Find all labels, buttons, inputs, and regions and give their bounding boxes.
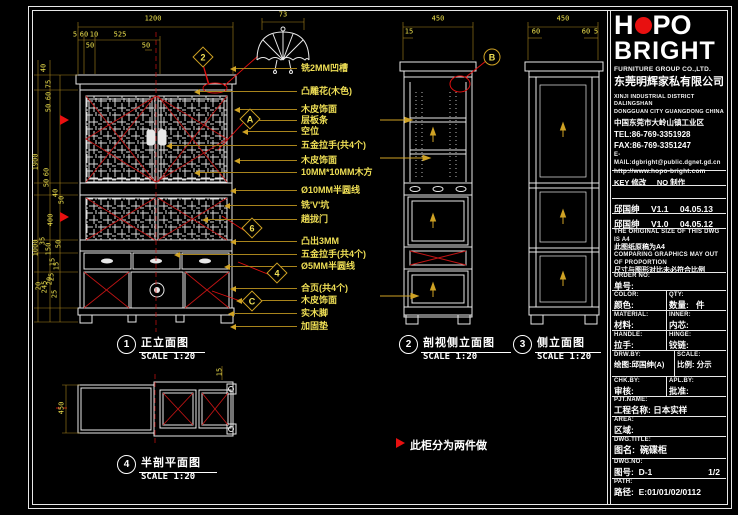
path-label-en: PATH: xyxy=(612,479,726,487)
red-marker-triangle xyxy=(60,115,74,125)
drawnby-label-cn: 绘图: xyxy=(614,360,632,369)
callout-leader-line xyxy=(236,109,297,110)
dimension-label: 60 xyxy=(44,168,51,176)
note-line-3: COMPARING GRAPHICS MAY OUT xyxy=(612,252,726,260)
rev-key-label: KEY 修改 xyxy=(612,178,646,186)
material-label-en: MATERIAL: xyxy=(614,312,668,320)
view4-title: 半剖平面图 xyxy=(139,454,217,473)
qty-unit: 件 xyxy=(696,300,705,310)
dimension-label: 20 xyxy=(47,277,54,285)
path-row: PATH: 路径: E:01/01/02/0112 xyxy=(612,479,726,499)
callout-arrow-icon xyxy=(227,188,236,194)
area-label-cn: 区域: xyxy=(612,425,726,435)
callout-label: 木皮饰面 xyxy=(301,296,337,305)
callout-leader-line xyxy=(232,288,297,289)
view4-number: 4 xyxy=(117,455,136,474)
logo-po: PO xyxy=(653,12,692,39)
view1-scale: SCALE 1:20 xyxy=(141,352,195,362)
dimension-label: 450 xyxy=(432,16,445,23)
dimension-label: 450 xyxy=(59,402,66,415)
callout-leader-line xyxy=(236,160,297,161)
color-label-en: COLOR: xyxy=(614,292,668,300)
rev-no-label: NO 制作 xyxy=(651,178,685,186)
note-arrow-icon xyxy=(396,438,410,448)
callout-leader-line xyxy=(176,254,297,255)
drawnby-label-en: DRW.BY: xyxy=(614,352,676,360)
callout-arrow-icon xyxy=(171,252,180,258)
revision-header: KEY 修改 NO 制作 DATE 日期 xyxy=(612,172,726,186)
callout-label: 层板条 xyxy=(301,116,328,125)
dimension-label: 1900 xyxy=(33,154,40,171)
inner-label-en: INNER: xyxy=(669,312,726,320)
logo-fax: FAX:86-769-3351247 xyxy=(612,140,726,151)
callout-label: 五金拉手(共4个) xyxy=(301,141,366,150)
handle-label-cn: 拉手: xyxy=(614,340,668,350)
color-label-cn: 颜色: xyxy=(614,300,668,310)
callout-arrow-icon xyxy=(227,324,236,330)
side-view-marks xyxy=(561,123,566,286)
dimension-label: 50 xyxy=(59,196,66,204)
logo-company-cn: 东莞明辉家私有限公司 xyxy=(612,74,726,91)
plan-view xyxy=(78,382,236,436)
dimension-label: 40 xyxy=(41,64,48,72)
note-text: 此柜分为两件做 xyxy=(410,437,487,453)
rev1-by: 邱国绅 xyxy=(612,204,640,214)
hinge-label-en: HINGE: xyxy=(669,332,726,340)
callout-label: 五金拉手(共4个) xyxy=(301,250,366,259)
callout-arrow-icon xyxy=(191,89,200,95)
logo-tel: TEL:86-769-3351928 xyxy=(612,127,726,140)
logo-email: E-MAIL:dgbright@public.dgnet.gd.cn xyxy=(612,150,726,167)
callout-leader-line xyxy=(226,205,297,206)
callout-label: 凸雕花(木色) xyxy=(301,87,352,96)
logo-address-cn: 中国东莞市大岭山镇工业区 xyxy=(612,116,726,127)
hinge-label-cn: 铰链: xyxy=(669,340,726,350)
dimension-label: 525 xyxy=(114,32,127,39)
view4-scale: SCALE 1:20 xyxy=(141,472,195,482)
approve-label-en: APL.BY: xyxy=(669,378,726,386)
logo-address-1: XINJI INDUSTRIAL DISTRICT DALINGSHAN xyxy=(612,91,726,108)
view2-number: 2 xyxy=(399,335,418,354)
dimension-label: 75 xyxy=(46,80,53,88)
callout-leader-line xyxy=(226,266,297,267)
callout-label: 加固垫 xyxy=(301,322,328,331)
handle-hinge-row: HANDLE: 拉手: HINGE: 铰链: xyxy=(612,331,726,351)
callout-arrow-icon xyxy=(191,170,200,176)
dimension-label: 450 xyxy=(557,16,570,23)
callout-arrow-icon xyxy=(199,217,208,223)
callout-label: Ø10MM半圆线 xyxy=(301,186,360,195)
dimension-label: 60 xyxy=(532,29,540,36)
callout-arrow-icon xyxy=(227,286,236,292)
dimension-label: 50 xyxy=(86,43,94,50)
rev2-by: 邱国绅 xyxy=(612,219,640,229)
qty-label-en: QTY: xyxy=(669,292,726,300)
order-no-label-cn: 单号: xyxy=(612,281,726,291)
revision-row-1: 邱国绅 V1.1 04.05.13 xyxy=(612,199,726,214)
logo-hopo: HPO xyxy=(612,12,726,39)
rev1-version: V1.1 xyxy=(644,204,669,214)
dimension-label: 1000 xyxy=(33,240,40,257)
dimension-label: 1200 xyxy=(145,16,162,23)
dimension-label: 5 xyxy=(594,29,598,36)
scale-value: 分示 xyxy=(697,360,712,369)
callout-label: 铣2MM凹槽 xyxy=(301,64,348,73)
drawing-title-row: DWG.TITLE: 图名: 碗碟柜 xyxy=(612,437,726,459)
callout-arrow-icon xyxy=(221,264,230,270)
color-qty-row: COLOR: 颜色: QTY: 数量: 件 xyxy=(612,291,726,311)
dimension-label: 73 xyxy=(279,12,287,19)
dwg-no-value: D-1 xyxy=(639,467,653,477)
order-no-row: ORDER NO: 单号: xyxy=(612,273,726,291)
dimension-label: 15 xyxy=(54,262,61,270)
logo-block: HPO BRIGHT FURNITURE GROUP CO.,LTD. 东莞明辉… xyxy=(612,12,726,171)
callout-leader-line xyxy=(230,313,297,314)
approve-label-cn: 批准: xyxy=(669,386,726,396)
section-side-view xyxy=(400,62,476,324)
dimension-label: 150 xyxy=(46,243,53,256)
callout-label: 合页(共4个) xyxy=(301,284,348,293)
callout-arrow-icon xyxy=(225,311,234,317)
view1-number: 1 xyxy=(117,335,136,354)
logo-subtitle: FURNITURE GROUP CO.,LTD. xyxy=(612,64,726,74)
view3-title: 侧立面图 xyxy=(535,334,601,353)
area-row: AREA: 区域: xyxy=(612,417,726,437)
callout-leader-line xyxy=(232,326,297,327)
callout-label: 木皮饰面 xyxy=(301,105,337,114)
callout-arrow-icon xyxy=(221,203,230,209)
callout-arrow-icon xyxy=(231,107,240,113)
logo-red-dot-icon xyxy=(635,17,652,34)
rev2-version: V1.0 xyxy=(644,219,669,229)
view3-number: 3 xyxy=(513,335,532,354)
inner-label-cn: 内芯: xyxy=(669,320,726,330)
dimension-label: 5 xyxy=(73,32,77,39)
revision-row-2: 邱国绅 V1.0 04.05.12 xyxy=(612,214,726,229)
dwg-title-label-cn: 图名: xyxy=(614,445,635,455)
rev1-date: 04.05.13 xyxy=(673,204,713,214)
handle-label-en: HANDLE: xyxy=(614,332,668,340)
check-label-en: CHK.BY: xyxy=(614,378,668,386)
callout-label: 实木脚 xyxy=(301,309,328,318)
dwg-title-value: 碗碟柜 xyxy=(640,445,667,455)
callout-label: 铣'V'坑 xyxy=(301,201,329,210)
order-no-label-en: ORDER NO: xyxy=(612,273,726,281)
dwg-title-label-en: DWG.TITLE: xyxy=(612,437,726,445)
sheet-number: 1/2 xyxy=(708,467,726,477)
callout-label: 趟拢门 xyxy=(301,215,328,224)
callout-leader-line xyxy=(244,131,297,132)
dimension-label: 25 xyxy=(52,290,59,298)
logo-h: H xyxy=(614,12,634,39)
rev2-date: 04.05.12 xyxy=(673,219,713,229)
callout-label: Ø5MM半圆线 xyxy=(301,262,355,271)
dimension-label: 15 xyxy=(405,29,413,36)
view2-title: 剖视侧立面图 xyxy=(421,334,511,353)
dimension-label: 60 xyxy=(46,92,53,100)
callout-arrow-icon xyxy=(227,66,236,72)
callout-label: 空位 xyxy=(301,127,319,136)
callout-leader-line xyxy=(196,91,297,92)
path-value: E:01/01/02/0112 xyxy=(639,487,701,497)
path-label-cn: 路径: xyxy=(614,487,634,497)
logo-address-2: DONGGUAN CITY GUANGDONG CHINA xyxy=(612,108,726,116)
dimension-label: 15 xyxy=(217,368,224,376)
note-line-2: 此图纸原稿为A4 xyxy=(612,244,726,252)
view2-scale: SCALE 1:20 xyxy=(423,352,477,362)
callout-arrow-icon xyxy=(231,158,240,164)
callout-label: 10MM*10MM木方 xyxy=(301,168,373,177)
revision-row-empty xyxy=(612,186,726,199)
dimension-label: 60 xyxy=(582,29,590,36)
callout-leader-line xyxy=(232,190,297,191)
material-label-cn: 材料: xyxy=(614,320,668,330)
project-name-row: PJT.NAME: 工程名称: 日本实样 xyxy=(612,397,726,417)
detail-marker-circle: B xyxy=(484,49,501,66)
dimension-label: 50 xyxy=(56,240,63,248)
callout-arrow-icon xyxy=(239,129,248,135)
callout-leader-line xyxy=(232,68,297,69)
dwg-no-label-cn: 图号: xyxy=(614,467,634,477)
qty-label-cn: 数量: xyxy=(669,300,689,310)
dwg-no-label-en: DWG.NO: xyxy=(612,459,726,467)
drawnby-scale-row: DRW.BY: 绘图:邱国绅(A) SCALE: 比例: 分示 xyxy=(612,351,726,377)
red-marker-triangle xyxy=(60,212,74,222)
view1-title: 正立面图 xyxy=(139,334,205,353)
material-inner-row: MATERIAL: 材料: INNER: 内芯: xyxy=(612,311,726,331)
scale-label-en: SCALE: xyxy=(677,352,726,360)
callout-label: 凸出3MM xyxy=(301,237,339,246)
callout-leader-line xyxy=(168,145,297,146)
scale-label-cn: 比例: xyxy=(677,360,695,369)
dimension-label: 50 xyxy=(46,104,53,112)
drawing-notes: THE ORIGINAL SIZE OF THIS DWG IS A4 此图纸原… xyxy=(612,229,726,273)
cad-drawing-sheet: 1200560105255050734075605019006050405040… xyxy=(0,0,738,515)
project-label-en: PJT.NAME: xyxy=(612,397,726,405)
dimension-label: 60 xyxy=(80,32,88,39)
view3-scale: SCALE 1:20 xyxy=(537,352,591,362)
check-approve-row: CHK.BY: 审核: APL.BY: 批准: xyxy=(612,377,726,397)
dimension-label: 10 xyxy=(90,32,98,39)
drawnby-value: 邱国绅(A) xyxy=(632,360,665,369)
logo-bright: BRIGHT xyxy=(612,39,726,64)
note-line-1: THE ORIGINAL SIZE OF THIS DWG IS A4 xyxy=(612,229,726,244)
callout-arrow-icon xyxy=(163,143,172,149)
section-side-view-marks xyxy=(380,61,486,299)
callout-label: 木皮饰面 xyxy=(301,156,337,165)
drawing-no-row: DWG.NO: 图号: D-11/2 xyxy=(612,459,726,479)
project-label-cn: 工程名称: xyxy=(614,405,651,415)
check-label-cn: 审核: xyxy=(614,386,668,396)
project-value: 日本实样 xyxy=(653,405,687,415)
callout-leader-line xyxy=(232,241,297,242)
callout-arrow-icon xyxy=(227,239,236,245)
dimension-label: 400 xyxy=(48,214,55,227)
dimension-label: 50 xyxy=(44,179,51,187)
side-view xyxy=(525,62,603,324)
dimension-label: 50 xyxy=(142,43,150,50)
area-label-en: AREA: xyxy=(612,417,726,425)
callout-leader-line xyxy=(196,172,297,173)
